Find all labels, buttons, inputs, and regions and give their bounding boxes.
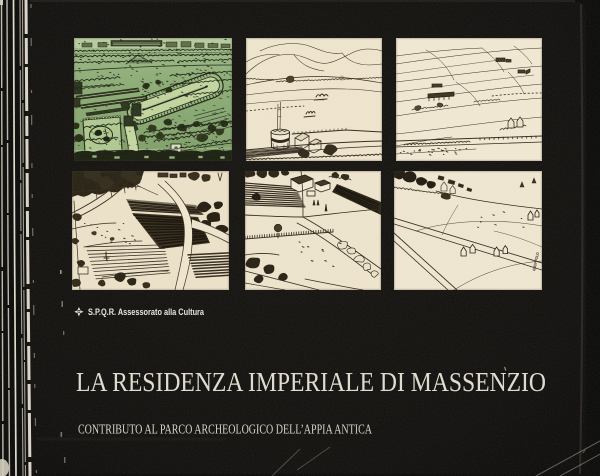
svg-text:S.P.Q.R. Assessorato alla Cult: S.P.Q.R. Assessorato alla Cultura	[88, 307, 204, 317]
svg-text:CONTRIBUTO AL PARCO ARCHEOLOGI: CONTRIBUTO AL PARCO ARCHEOLOGICO DELL’AP…	[78, 422, 372, 437]
svg-text:LA RESIDENZA IMPERIALE DI MASS: LA RESIDENZA IMPERIALE DI MASSENZIO	[76, 367, 546, 397]
